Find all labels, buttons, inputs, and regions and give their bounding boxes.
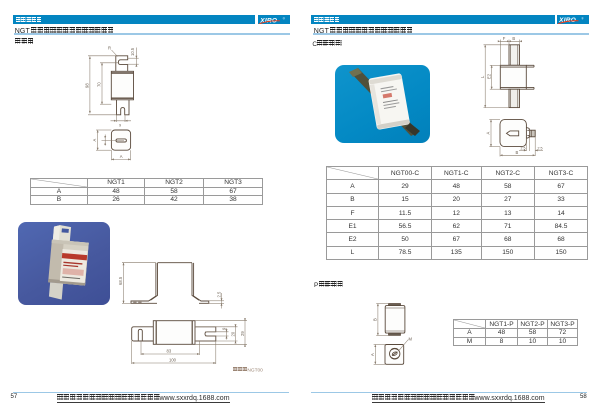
svg-text:70: 70 xyxy=(97,82,102,87)
svg-text:A: A xyxy=(92,139,97,142)
svg-text:B: B xyxy=(372,318,377,321)
svg-text:2.5: 2.5 xyxy=(217,291,222,297)
svg-text:100: 100 xyxy=(169,358,177,363)
svg-text:20: 20 xyxy=(230,331,235,336)
svg-text:2.5: 2.5 xyxy=(521,146,526,150)
svg-text:A: A xyxy=(486,132,491,135)
svg-text:29: 29 xyxy=(240,331,245,336)
svg-text:M: M xyxy=(409,337,413,342)
svg-text:L: L xyxy=(480,75,485,78)
svg-text:68.5: 68.5 xyxy=(118,276,123,285)
svg-text:10.5: 10.5 xyxy=(130,47,135,56)
svg-text:E2: E2 xyxy=(486,73,491,79)
svg-text:9: 9 xyxy=(119,124,121,128)
svg-text:F: F xyxy=(503,36,506,41)
svg-text:B: B xyxy=(516,150,519,155)
svg-text:A: A xyxy=(370,353,375,356)
svg-text:98: 98 xyxy=(85,83,90,88)
svg-text:R: R xyxy=(108,46,111,51)
svg-text:2.5: 2.5 xyxy=(538,146,543,150)
svg-text:A: A xyxy=(120,154,123,159)
svg-text:9: 9 xyxy=(221,327,226,330)
svg-text:B: B xyxy=(512,36,515,41)
svg-text:83: 83 xyxy=(167,349,172,354)
